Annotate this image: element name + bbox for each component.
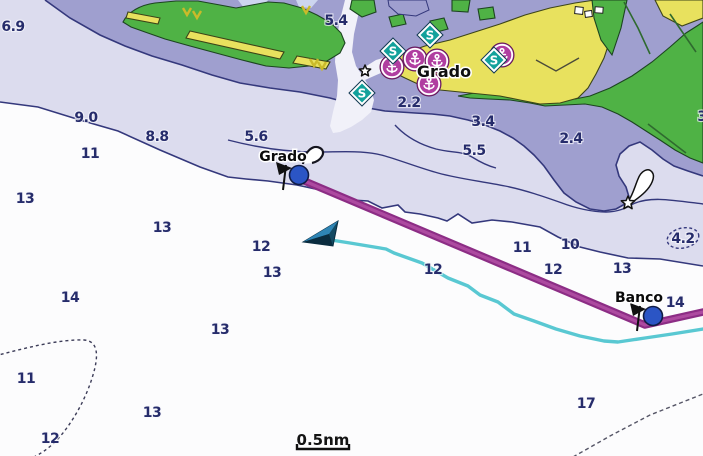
depth-label: 2.4 xyxy=(559,131,583,147)
depth-label: 11 xyxy=(81,146,99,162)
depth-label: 13 xyxy=(263,265,281,281)
depth-label: 3 xyxy=(697,109,703,125)
depth-label: 12 xyxy=(424,262,442,278)
depth-label: 5.5 xyxy=(462,143,485,159)
depth-label: 8.8 xyxy=(145,129,168,145)
depth-label: 13 xyxy=(143,405,161,421)
depth-label: 6.9 xyxy=(1,19,24,35)
depth-label: 14 xyxy=(666,295,685,311)
depth-label: 12 xyxy=(544,262,562,278)
star-icon xyxy=(359,65,370,76)
town-label: Grado xyxy=(417,62,471,81)
sign-letter: S xyxy=(358,87,367,101)
depth-label: 13 xyxy=(153,220,171,236)
depth-label: 3.4 xyxy=(471,114,495,130)
waypoint-circle xyxy=(644,307,663,326)
waypoint-marker[interactable]: Grado xyxy=(259,149,308,190)
depth-label: 5.6 xyxy=(244,129,267,145)
depth-label: 10 xyxy=(561,237,580,253)
light-icon xyxy=(621,170,653,209)
depth-label: 5.4 xyxy=(324,13,348,29)
depth-label: 14 xyxy=(61,290,80,306)
depth-label: 2.2 xyxy=(397,95,420,111)
waypoint-circle xyxy=(290,166,309,185)
circled-depth-value: 4.2 xyxy=(671,231,694,247)
speed-sign-icon: S xyxy=(349,80,375,106)
speed-sign-icon: S xyxy=(417,22,443,48)
depth-label: 13 xyxy=(211,322,229,338)
depth-label: 12 xyxy=(252,239,270,255)
chart-overlay: 4.2SSSSGradoBanco6.95.49.08.8115.62.23.4… xyxy=(0,0,703,456)
light-flare-icon xyxy=(629,170,653,203)
depth-label: 12 xyxy=(41,431,59,447)
vessel-icon[interactable] xyxy=(303,221,338,246)
depth-label: 13 xyxy=(16,191,34,207)
depth-label: 13 xyxy=(613,261,631,277)
depth-label: 17 xyxy=(577,396,595,412)
scale-label: 0.5nm xyxy=(297,431,350,449)
depth-label: 9.0 xyxy=(74,110,98,126)
waypoint-label: Grado xyxy=(259,149,307,165)
waypoint-label: Banco xyxy=(615,290,663,306)
sign-letter: S xyxy=(490,54,499,68)
sign-letter: S xyxy=(389,45,398,59)
chart-canvas[interactable]: 4.2SSSSGradoBanco6.95.49.08.8115.62.23.4… xyxy=(0,0,703,456)
depth-label: 11 xyxy=(513,240,531,256)
light-icon xyxy=(359,65,370,76)
sign-letter: S xyxy=(426,29,435,43)
scale-bar: 0.5nm xyxy=(297,431,350,449)
depth-label: 11 xyxy=(17,371,35,387)
